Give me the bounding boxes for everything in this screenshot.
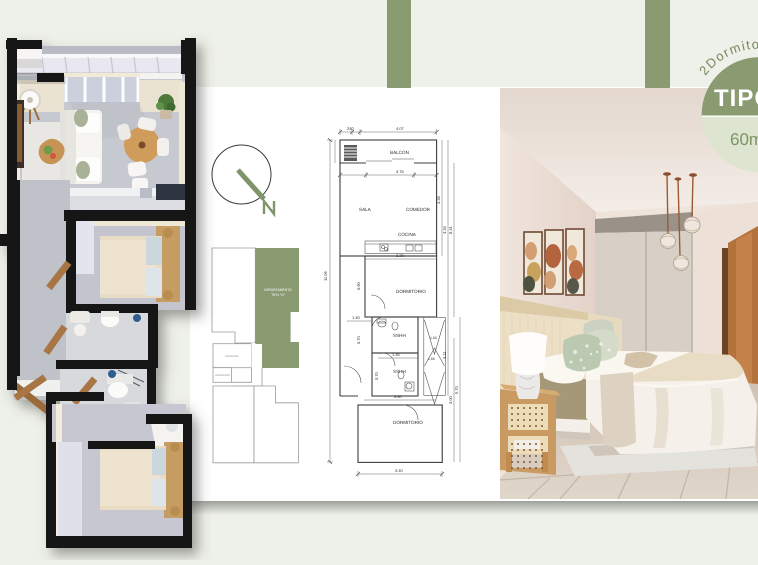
svg-text:3.40: 3.40	[395, 468, 404, 473]
svg-text:1.60: 1.60	[430, 336, 437, 340]
svg-text:1.40: 1.40	[352, 315, 361, 320]
svg-text:60m²: 60m²	[730, 130, 758, 149]
svg-text:0.90: 0.90	[356, 281, 361, 290]
svg-text:TIPO "D": TIPO "D"	[271, 293, 286, 297]
svg-text:COMEDOR: COMEDOR	[406, 207, 431, 212]
svg-text:DORMITORIO: DORMITORIO	[393, 420, 423, 425]
svg-text:COCINA: COCINA	[398, 232, 417, 237]
svg-text:SSHH: SSHH	[393, 369, 406, 374]
svg-text:3.20: 3.20	[396, 253, 405, 258]
svg-text:4.34: 4.34	[436, 195, 441, 204]
svg-text:BALCON: BALCON	[390, 150, 409, 155]
svg-text:8.41: 8.41	[448, 225, 453, 234]
svg-text:1.60: 1.60	[428, 357, 435, 361]
svg-text:4.07: 4.07	[396, 126, 405, 131]
svg-text:0.70: 0.70	[374, 371, 379, 380]
svg-text:ESCALERA: ESCALERA	[225, 355, 239, 358]
svg-text:11.06: 11.06	[323, 271, 328, 281]
svg-text:5.70: 5.70	[454, 385, 459, 394]
svg-text:TIPO D: TIPO D	[714, 85, 758, 112]
svg-text:4.34: 4.34	[442, 225, 447, 234]
svg-text:3.60: 3.60	[394, 394, 403, 399]
svg-text:3.00: 3.00	[448, 395, 453, 404]
svg-text:4.76: 4.76	[396, 169, 405, 174]
svg-text:DEPARTAMENTO: DEPARTAMENTO	[264, 288, 292, 292]
svg-text:DORMITORIO: DORMITORIO	[396, 289, 426, 294]
svg-text:3.11: 3.11	[442, 351, 447, 359]
svg-text:1.46: 1.46	[392, 352, 401, 357]
svg-text:0.70: 0.70	[356, 335, 361, 344]
svg-text:.240: .240	[346, 126, 355, 131]
svg-text:SSHH: SSHH	[393, 333, 406, 338]
svg-text:SALA: SALA	[359, 207, 372, 212]
